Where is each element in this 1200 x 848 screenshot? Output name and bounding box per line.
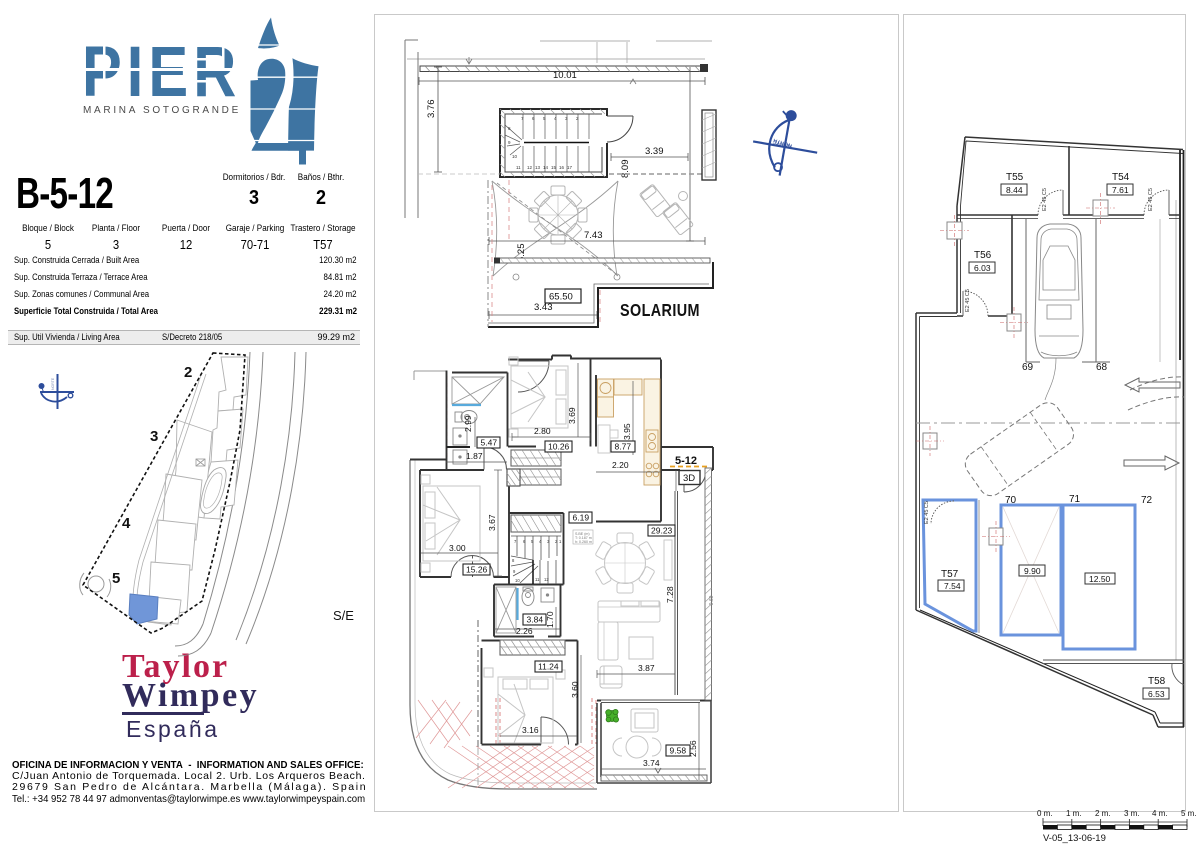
svg-text:15: 15 xyxy=(551,165,557,170)
svg-text:3.74: 3.74 xyxy=(643,758,660,768)
svg-text:3.43: 3.43 xyxy=(534,302,553,313)
svg-text:V-05_13-06-19: V-05_13-06-19 xyxy=(1043,833,1106,844)
svg-text:3.67: 3.67 xyxy=(487,514,497,531)
svg-text:7.43: 7.43 xyxy=(584,230,603,241)
svg-text:8: 8 xyxy=(512,558,515,563)
svg-text:E2 45 C5: E2 45 C5 xyxy=(1042,188,1048,211)
svg-text:5 m.: 5 m. xyxy=(1181,809,1197,818)
svg-text:11: 11 xyxy=(535,577,540,582)
svg-text:7.54: 7.54 xyxy=(944,581,961,591)
svg-text:2: 2 xyxy=(555,539,558,544)
svg-text:E2 45 C5: E2 45 C5 xyxy=(1148,188,1154,211)
svg-text:0 m.: 0 m. xyxy=(1037,809,1053,818)
svg-text:NORTE: NORTE xyxy=(51,377,55,390)
svg-text:70: 70 xyxy=(1005,495,1017,506)
svg-text:5: 5 xyxy=(543,116,546,121)
svg-text:-0.60: -0.60 xyxy=(709,595,715,607)
svg-text:12: 12 xyxy=(527,165,533,170)
svg-text:T58: T58 xyxy=(1148,676,1166,687)
svg-text:72: 72 xyxy=(1141,495,1153,506)
svg-text:T56: T56 xyxy=(974,250,992,261)
svg-text:6.53: 6.53 xyxy=(1148,689,1165,699)
svg-text:2: 2 xyxy=(576,116,579,121)
svg-text:8.44: 8.44 xyxy=(1006,185,1023,195)
svg-text:1: 1 xyxy=(559,539,562,544)
svg-text:3.84: 3.84 xyxy=(527,615,544,625)
svg-text:10.26: 10.26 xyxy=(548,442,570,452)
svg-text:29.23: 29.23 xyxy=(651,526,673,536)
svg-text:T55: T55 xyxy=(1006,172,1024,183)
svg-text:E2 45 C5: E2 45 C5 xyxy=(965,289,971,312)
svg-text:10.01: 10.01 xyxy=(553,70,577,81)
svg-text:2.99: 2.99 xyxy=(463,415,473,432)
svg-text:3.87: 3.87 xyxy=(638,663,655,673)
svg-text:3.16: 3.16 xyxy=(522,725,539,735)
svg-text:3 m.: 3 m. xyxy=(1124,809,1140,818)
svg-text:5-12: 5-12 xyxy=(675,455,697,467)
svg-text:3: 3 xyxy=(565,116,568,121)
svg-text:4 m.: 4 m. xyxy=(1152,809,1168,818)
svg-text:65.50: 65.50 xyxy=(549,292,573,303)
svg-text:3.95: 3.95 xyxy=(622,423,632,440)
svg-text:12: 12 xyxy=(544,577,549,582)
svg-text:71: 71 xyxy=(1069,494,1081,505)
svg-text:3D: 3D xyxy=(683,473,695,484)
svg-text:69: 69 xyxy=(1022,362,1034,373)
svg-text:14: 14 xyxy=(543,165,549,170)
svg-text:68: 68 xyxy=(1096,362,1108,373)
svg-text:2.80: 2.80 xyxy=(534,426,551,436)
svg-text:1.87: 1.87 xyxy=(466,451,483,461)
svg-text:3: 3 xyxy=(547,539,550,544)
svg-text:2: 2 xyxy=(184,364,192,381)
svg-text:5: 5 xyxy=(531,539,534,544)
svg-text:17: 17 xyxy=(567,165,573,170)
svg-text:5: 5 xyxy=(112,570,120,587)
svg-text:2.20: 2.20 xyxy=(612,460,629,470)
svg-text:9.58: 9.58 xyxy=(670,746,687,756)
svg-text:6: 6 xyxy=(532,116,535,121)
svg-text:T54: T54 xyxy=(1112,172,1130,183)
svg-text:S/E: S/E xyxy=(333,608,354,623)
svg-text:5.47: 5.47 xyxy=(481,438,498,448)
svg-text:9.90: 9.90 xyxy=(1024,566,1041,576)
svg-text:8.77: 8.77 xyxy=(615,442,632,452)
svg-text:4: 4 xyxy=(122,515,131,532)
svg-text:3.39: 3.39 xyxy=(645,146,664,157)
svg-text:16: 16 xyxy=(559,165,565,170)
svg-text:SOLARIUM: SOLARIUM xyxy=(620,301,700,321)
svg-text:3.76: 3.76 xyxy=(426,100,437,119)
svg-text:13: 13 xyxy=(535,165,541,170)
svg-text:E2 45 C5: E2 45 C5 xyxy=(924,501,930,524)
svg-text:1 m.: 1 m. xyxy=(1066,809,1082,818)
svg-text:9: 9 xyxy=(508,140,511,145)
svg-text:7: 7 xyxy=(514,539,517,544)
svg-text:3.60: 3.60 xyxy=(570,681,580,698)
svg-text:7.61: 7.61 xyxy=(1112,185,1129,195)
svg-text:10: 10 xyxy=(512,154,518,159)
svg-text:4: 4 xyxy=(554,116,557,121)
svg-text:h: 0.260 m: h: 0.260 m xyxy=(575,540,592,544)
svg-text:2.26: 2.26 xyxy=(516,626,533,636)
svg-text:3.69: 3.69 xyxy=(567,407,577,424)
svg-text:12.50: 12.50 xyxy=(1089,574,1111,584)
svg-text:T57: T57 xyxy=(941,569,959,580)
svg-text:11: 11 xyxy=(516,165,521,170)
svg-text:8.09: 8.09 xyxy=(620,160,631,179)
svg-text:9: 9 xyxy=(513,569,516,574)
svg-text:6.03: 6.03 xyxy=(974,263,991,273)
svg-text:11.24: 11.24 xyxy=(538,662,559,672)
svg-text:3: 3 xyxy=(150,428,158,445)
svg-text:15.26: 15.26 xyxy=(466,565,488,575)
svg-text:10: 10 xyxy=(515,578,520,583)
svg-text:7.28: 7.28 xyxy=(665,586,675,603)
svg-text:4: 4 xyxy=(539,539,542,544)
svg-text:6: 6 xyxy=(523,539,526,544)
svg-text:7: 7 xyxy=(521,116,524,121)
svg-text:3.00: 3.00 xyxy=(449,543,466,553)
svg-text:2 m.: 2 m. xyxy=(1095,809,1111,818)
svg-text:6.19: 6.19 xyxy=(573,513,590,523)
